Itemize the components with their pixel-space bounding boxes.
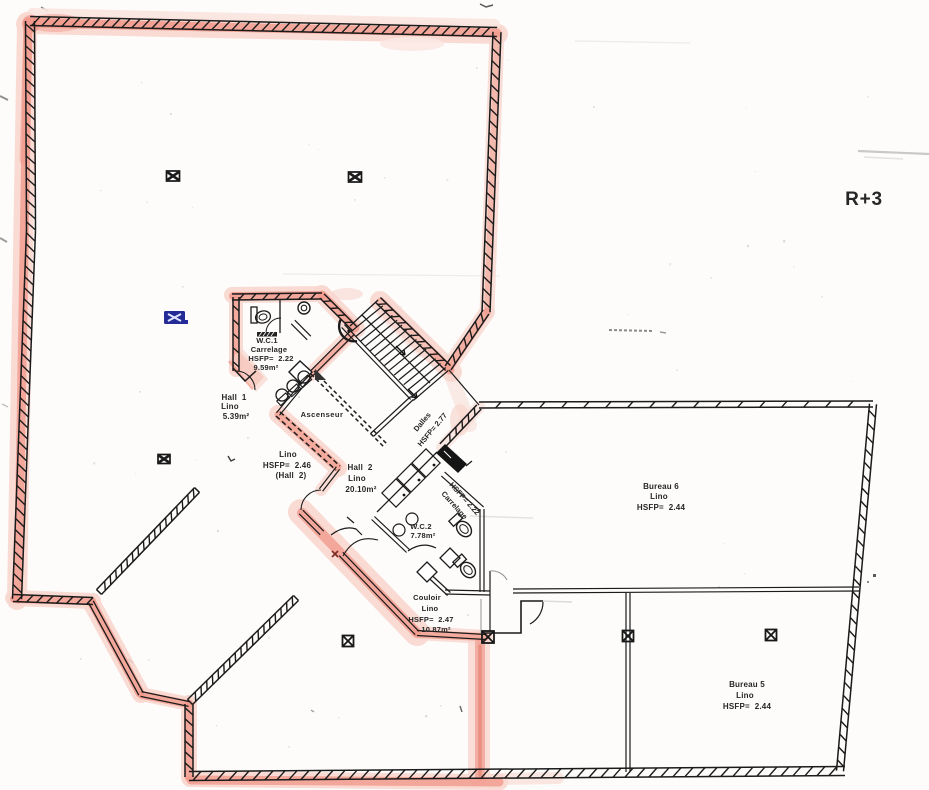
svg-text:Lino: Lino	[736, 691, 754, 700]
svg-text:Lino: Lino	[221, 402, 239, 411]
svg-text:HSFP= 2.44: HSFP= 2.44	[723, 702, 772, 711]
svg-text:7.78m²: 7.78m²	[411, 531, 436, 540]
svg-text:Bureau 5: Bureau 5	[729, 680, 765, 689]
svg-text:(Hall 2): (Hall 2)	[276, 471, 307, 480]
svg-text:Hall 1: Hall 1	[222, 393, 247, 402]
svg-text:Lino: Lino	[422, 604, 439, 613]
svg-text:W.C.1: W.C.1	[256, 336, 277, 345]
svg-text:HSFP= 2.47: HSFP= 2.47	[408, 615, 453, 624]
svg-text:9.59m²: 9.59m²	[254, 363, 279, 372]
svg-text:Lino: Lino	[348, 474, 366, 483]
svg-text:Couloir: Couloir	[413, 593, 441, 602]
svg-text:Bureau 6: Bureau 6	[643, 482, 679, 491]
svg-text:Hall 2: Hall 2	[348, 463, 373, 472]
svg-text:W.C.2: W.C.2	[410, 522, 431, 531]
svg-text:Lino: Lino	[279, 450, 297, 459]
svg-text:20.10m²: 20.10m²	[345, 485, 376, 494]
svg-text:HSFP= 2.44: HSFP= 2.44	[637, 503, 686, 512]
svg-text:5.39m²: 5.39m²	[223, 412, 250, 421]
svg-text:Lino: Lino	[650, 492, 668, 501]
svg-text:R+3: R+3	[845, 189, 883, 210]
svg-text:HSFP= 2.46: HSFP= 2.46	[263, 461, 312, 470]
svg-text:10.87m²: 10.87m²	[421, 625, 451, 634]
svg-text:Carrelage: Carrelage	[251, 345, 287, 354]
svg-text:HSFP= 2.22: HSFP= 2.22	[248, 354, 293, 363]
svg-text:Ascenseur: Ascenseur	[301, 410, 344, 419]
